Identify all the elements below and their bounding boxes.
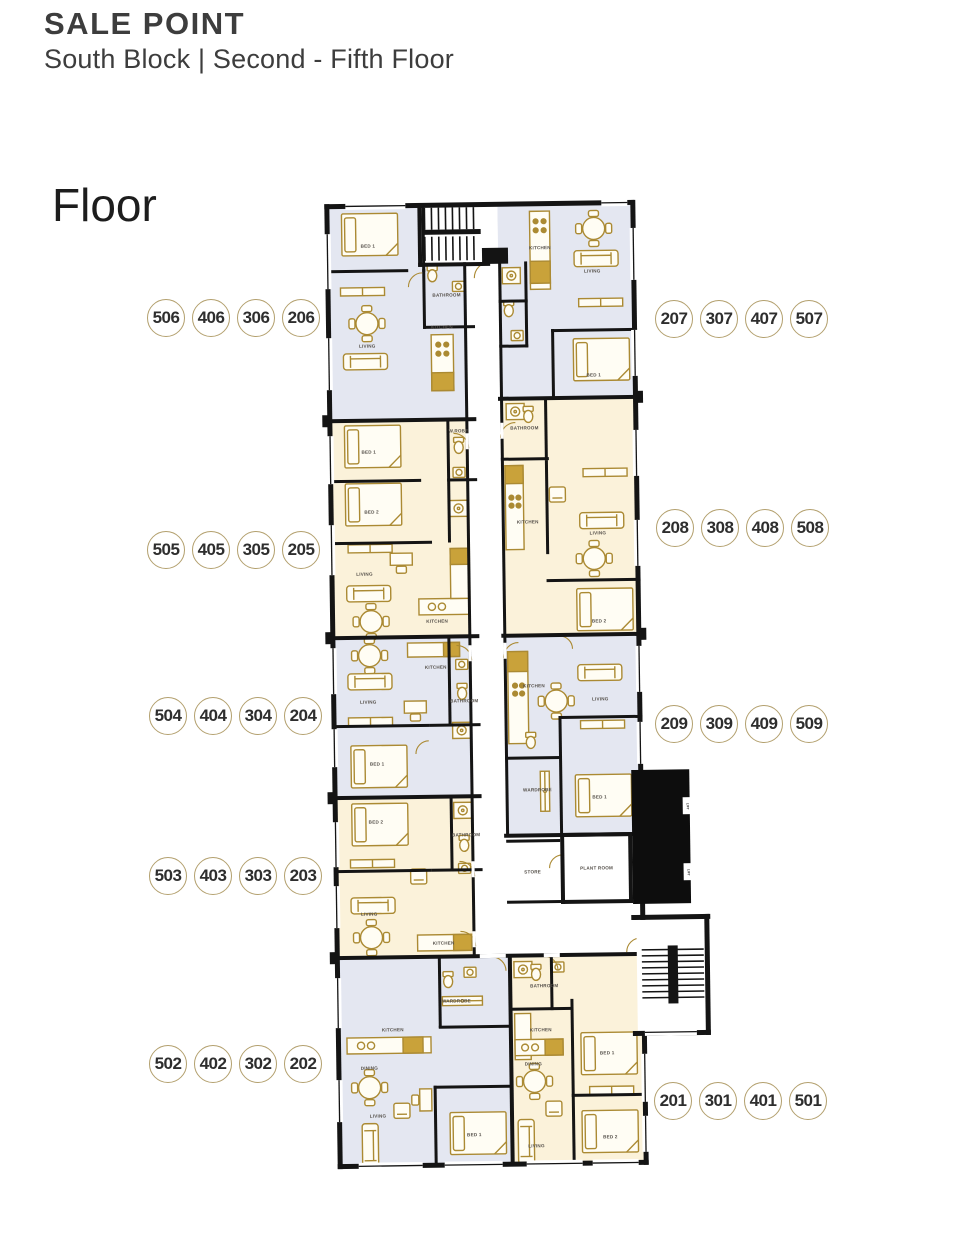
room-label: WARDROBE <box>523 787 552 792</box>
unit-circle-308: 308 <box>701 509 739 547</box>
unit-circle-507: 507 <box>790 300 828 338</box>
unit-circle-302: 302 <box>239 1045 277 1083</box>
unit-circle-406: 406 <box>192 299 230 337</box>
lobby <box>506 835 641 957</box>
unit-circle-306: 306 <box>237 299 275 337</box>
room-label: BED 1 <box>600 1050 615 1055</box>
lift-label: LIFT <box>687 869 691 876</box>
room-label: BED 1 <box>467 1132 482 1137</box>
room-label: LIVING <box>359 344 376 349</box>
unit-circle-509: 509 <box>790 705 828 743</box>
unit-circle-202: 202 <box>284 1045 322 1083</box>
room-label: STORE <box>524 869 541 874</box>
room-label: BATHROOM <box>432 292 460 297</box>
room-label: BED 2 <box>592 618 607 623</box>
room-label: KITCHEN <box>431 324 453 329</box>
plan-area: BED 1BATHROOMLIVINGKITCHENKITCHENLIVINGB… <box>0 0 980 1240</box>
room-label: KITCHEN <box>425 665 447 670</box>
room-label: WARDROBE <box>442 998 471 1003</box>
unit-row-left-4: 503403303203 <box>149 857 322 895</box>
unit-circle-307: 307 <box>700 300 738 338</box>
unit-row-right-3: 209309409509 <box>655 705 828 743</box>
room-label: KITCHEN <box>523 683 545 688</box>
unit-circle-503: 503 <box>149 857 187 895</box>
unit-circle-206: 206 <box>282 299 320 337</box>
unit-row-right-1: 207307407507 <box>655 300 828 338</box>
unit-circle-508: 508 <box>791 509 829 547</box>
unit-circle-506: 506 <box>147 299 185 337</box>
unit-circle-204: 204 <box>284 697 322 735</box>
room-label: BED 1 <box>361 450 376 455</box>
unit-row-left-2: 505405305205 <box>147 531 320 569</box>
unit-row-left-3: 504404304204 <box>149 697 322 735</box>
room-label: LIVING <box>528 1143 545 1148</box>
unit-circle-304: 304 <box>239 697 277 735</box>
room-label: LIVING <box>360 700 377 705</box>
room-label: KITCHEN <box>530 1027 552 1032</box>
unit-circle-303: 303 <box>239 857 277 895</box>
room-label: BED 2 <box>603 1134 618 1139</box>
room-label: KITCHEN <box>433 940 455 945</box>
floor-plan-page: SALE POINT South Block | Second - Fifth … <box>0 0 980 1240</box>
room-label: W.ROBE <box>449 428 469 433</box>
room-label: LIVING <box>361 912 378 917</box>
room-label: BED 1 <box>586 372 601 377</box>
room-label: BED 1 <box>361 244 376 249</box>
unit-circle-301: 301 <box>699 1082 737 1120</box>
room-label: BED 1 <box>370 761 385 766</box>
unit-circle-505: 505 <box>147 531 185 569</box>
unit-circle-501: 501 <box>789 1082 827 1120</box>
unit-circle-209: 209 <box>655 705 693 743</box>
unit-circle-402: 402 <box>194 1045 232 1083</box>
unit-row-left-5: 502402302202 <box>149 1045 322 1083</box>
room-label: BATHROOM <box>450 698 478 703</box>
stair-wing <box>631 914 712 1036</box>
lift-label: LIFT <box>686 803 690 810</box>
room-label: LIVING <box>590 530 607 535</box>
unit-circle-409: 409 <box>745 705 783 743</box>
room-label: BATHROOM <box>530 983 558 988</box>
building: BED 1BATHROOMLIVINGKITCHENKITCHENLIVINGB… <box>319 198 713 1170</box>
room-label: DINING <box>525 1061 543 1066</box>
room-label: KITCHEN <box>426 619 448 624</box>
unit-row-left-1: 506406306206 <box>147 299 320 337</box>
room-label: LIVING <box>592 696 609 701</box>
room-label: PLANT ROOM <box>580 865 613 870</box>
unit-circle-408: 408 <box>746 509 784 547</box>
unit-circle-309: 309 <box>700 705 738 743</box>
unit-circle-502: 502 <box>149 1045 187 1083</box>
room-label: LIVING <box>584 268 601 273</box>
unit-row-right-4: 201301401501 <box>654 1082 827 1120</box>
unit-circle-305: 305 <box>237 531 275 569</box>
unit-circle-203: 203 <box>284 857 322 895</box>
unit-circle-401: 401 <box>744 1082 782 1120</box>
room-label: DINING <box>361 1066 379 1071</box>
unit-row-right-2: 208308408508 <box>656 509 829 547</box>
room-label: KITCHEN <box>529 245 551 250</box>
room-label: LIVING <box>356 572 373 577</box>
unit-circle-208: 208 <box>656 509 694 547</box>
room-label: BED 2 <box>369 819 384 824</box>
room-label: KITCHEN <box>382 1027 404 1032</box>
unit-circle-404: 404 <box>194 697 232 735</box>
room-label: LIVING <box>370 1113 387 1118</box>
unit-circle-201: 201 <box>654 1082 692 1120</box>
room-label: BATHROOM <box>510 425 538 430</box>
unit-circle-407: 407 <box>745 300 783 338</box>
room-label: KITCHEN <box>517 519 539 524</box>
lift-block <box>631 769 692 904</box>
floorplan-svg: BED 1BATHROOMLIVINGKITCHENKITCHENLIVINGB… <box>0 0 980 1240</box>
unit-circle-205: 205 <box>282 531 320 569</box>
room-label: BATHROOM <box>452 832 480 837</box>
room-label: BED 2 <box>364 510 379 515</box>
unit-circle-403: 403 <box>194 857 232 895</box>
unit-circle-207: 207 <box>655 300 693 338</box>
unit-circle-504: 504 <box>149 697 187 735</box>
room-label: BED 1 <box>592 794 607 799</box>
unit-circle-405: 405 <box>192 531 230 569</box>
